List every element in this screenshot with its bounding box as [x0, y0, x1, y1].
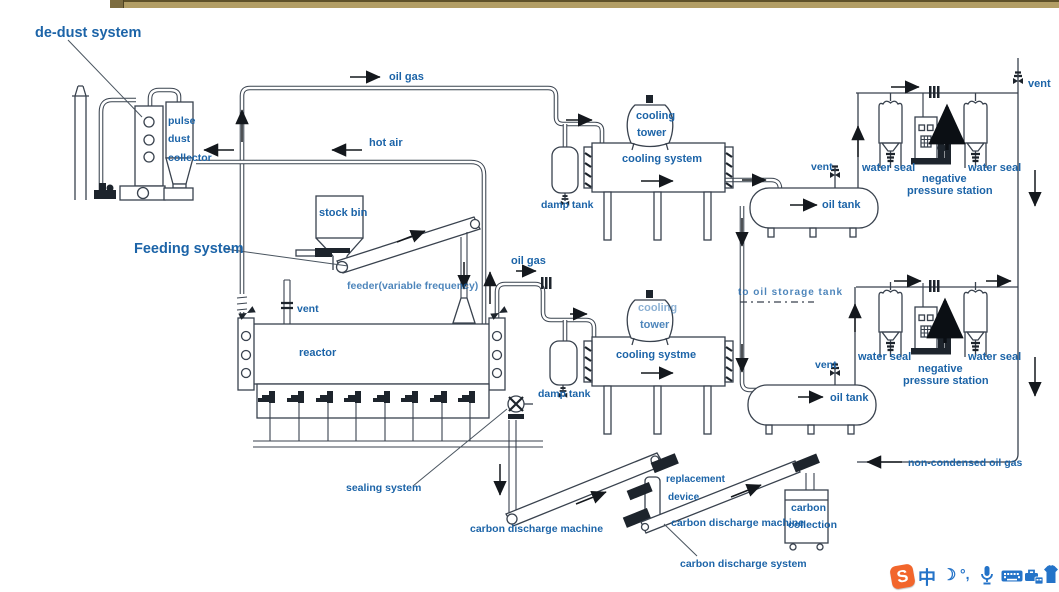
sogou-logo-icon[interactable]: S — [889, 563, 916, 590]
label-feeder: feeder(variable frequency) — [347, 280, 478, 292]
label-feeding-system: Feeding system — [134, 241, 244, 257]
label-carbon-discharge-machine-1: carbon discharge machine — [470, 523, 603, 535]
oil-tank-1 — [750, 188, 878, 237]
label-water-seal-2a: water seal — [857, 351, 911, 363]
label-reactor: reactor — [299, 347, 337, 359]
label-sealing-system: sealing system — [346, 482, 421, 494]
flow-arrows — [204, 77, 1035, 504]
label-damp-tank-1: damp tank — [541, 199, 594, 211]
cooling-row-1 — [552, 86, 987, 240]
label-tower-2: tower — [640, 319, 670, 331]
water-seal-2a — [879, 282, 902, 357]
label-to-oil-storage-tank: to oil storage tank — [738, 287, 843, 298]
label-replacement: replacement — [666, 474, 726, 485]
label-collector: collector — [168, 152, 212, 164]
cyclone-body — [166, 102, 193, 158]
negative-pressure-station-1 — [911, 93, 951, 165]
label-pulse: pulse — [168, 115, 196, 127]
label-vent-right: vent — [1028, 78, 1051, 90]
water-seal-2b — [964, 282, 987, 357]
discharge-pipe — [509, 420, 516, 514]
reactor-body — [253, 324, 491, 384]
label-carbon: carbon — [791, 502, 826, 514]
cooling-tower-1 — [627, 95, 673, 150]
label-hot-air: hot air — [369, 137, 403, 149]
cooling-row-2 — [541, 277, 987, 434]
water-seal-1b — [964, 93, 987, 168]
label-stock-bin: stock bin — [319, 207, 368, 219]
label-damp-tank-2: damp tank — [538, 388, 591, 400]
cooling-tower-2 — [627, 290, 673, 345]
floor-header — [253, 441, 543, 447]
label-vent-reactor: vent — [297, 303, 319, 315]
label-oil-tank-2: oil tank — [830, 392, 869, 404]
water-seal-1a — [879, 93, 902, 168]
sealing-device — [508, 396, 533, 419]
process-flow-diagram: de-dust system pulse dust collector oil … — [0, 0, 1059, 592]
punctuation-mode-icon[interactable]: °, — [960, 566, 970, 582]
label-non-condensed: non-condensed oil gas — [908, 457, 1023, 469]
chinese-mode-icon[interactable]: 中 — [918, 564, 936, 590]
label-cooling-system-1: cooling system — [622, 153, 702, 165]
damp-tank-1 — [552, 147, 578, 193]
label-oil-gas-top: oil gas — [389, 71, 424, 83]
label-cooling-1: cooling — [636, 110, 675, 122]
label-vent-tank-1: vent — [811, 161, 833, 173]
label-cooling-2: cooling — [638, 302, 677, 314]
label-oil-tank-1: oil tank — [822, 199, 861, 211]
input-method-toolbar: S 中 ☽ °, — [885, 560, 1059, 592]
cyclone-base — [164, 188, 193, 200]
label-water-seal-1b: water seal — [967, 162, 1021, 174]
label-carbon-discharge-system: carbon discharge system — [680, 558, 807, 570]
label-pressure-station-2: pressure station — [903, 375, 989, 387]
label-collection: collection — [788, 519, 837, 531]
label-negative-1: negative — [922, 173, 967, 185]
screenshot-stage: de-dust system pulse dust collector oil … — [0, 0, 1059, 592]
label-water-seal-2b: water seal — [967, 351, 1021, 363]
chimney — [72, 86, 89, 200]
label-negative-2: negative — [918, 363, 963, 375]
label-water-seal-1a: water seal — [861, 162, 915, 174]
label-dust: dust — [168, 133, 191, 145]
label-de-dust-system: de-dust system — [35, 25, 141, 41]
dust-pump — [94, 183, 116, 199]
label-tower-1: tower — [637, 127, 667, 139]
label-cooling-system-2: cooling systme — [616, 349, 696, 361]
label-carbon-discharge-machine-2: carbon discharge machine — [671, 517, 804, 529]
label-device: device — [668, 492, 700, 503]
label-oil-gas-mid: oil gas — [511, 255, 546, 267]
label-vent-tank-2: vent — [815, 359, 837, 371]
label-pressure-station-1: pressure station — [907, 185, 993, 197]
full-half-width-moon-icon[interactable]: ☽ — [942, 565, 956, 585]
damp-tank-2 — [550, 341, 577, 385]
